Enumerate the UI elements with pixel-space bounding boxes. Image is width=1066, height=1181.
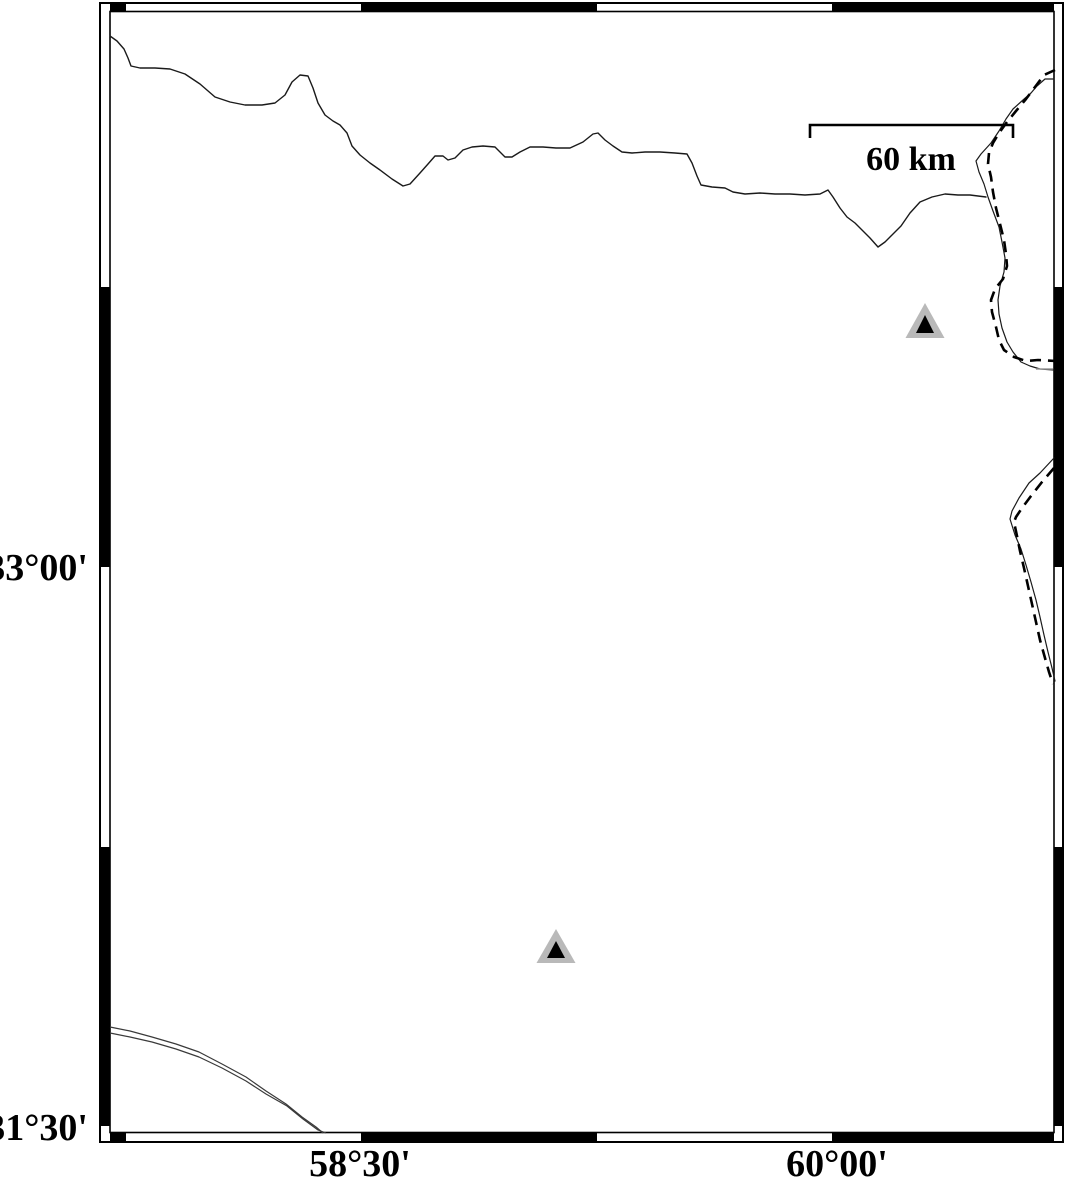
latitude-label-31-30: 31°30' (0, 1107, 88, 1149)
map-svg: 60 km 33°00' 31°30' 58°30' 60°00' (0, 0, 1066, 1181)
map-features (110, 36, 1056, 1133)
longitude-label-58-30: 58°30' (309, 1143, 411, 1181)
frame-segment-left (100, 847, 110, 1126)
double-line-lower (110, 1033, 326, 1133)
border-line-north (110, 36, 986, 247)
frame-segment-top (110, 3, 126, 12)
frame-segment-right (1054, 287, 1063, 567)
dashed-border-upper (988, 70, 1056, 361)
frame-segment-left (100, 287, 110, 567)
scale-bar-label: 60 km (866, 141, 956, 178)
frame-inner-rect (110, 12, 1054, 1133)
frame-segment-right (1054, 847, 1063, 1126)
station-triangle (906, 303, 945, 338)
axis-annotations: 33°00' 31°30' 58°30' 60°00' (0, 547, 888, 1181)
frame-segment-bottom (361, 1133, 597, 1143)
border-line-east-lower (1010, 458, 1055, 681)
map-canvas: 60 km 33°00' 31°30' 58°30' 60°00' (0, 0, 1066, 1181)
frame-segment-top (832, 3, 1054, 12)
station-triangle (537, 929, 576, 963)
latitude-label-33-00: 33°00' (0, 547, 88, 589)
border-line-east-upper (976, 79, 1054, 370)
frame-segment-bottom (110, 1133, 126, 1143)
frame-segment-top (361, 3, 597, 12)
double-line-upper (110, 1027, 323, 1133)
scale-bar-bracket (810, 125, 1013, 138)
frame-segment-bottom (832, 1133, 1054, 1143)
longitude-label-60-00: 60°00' (786, 1143, 888, 1181)
